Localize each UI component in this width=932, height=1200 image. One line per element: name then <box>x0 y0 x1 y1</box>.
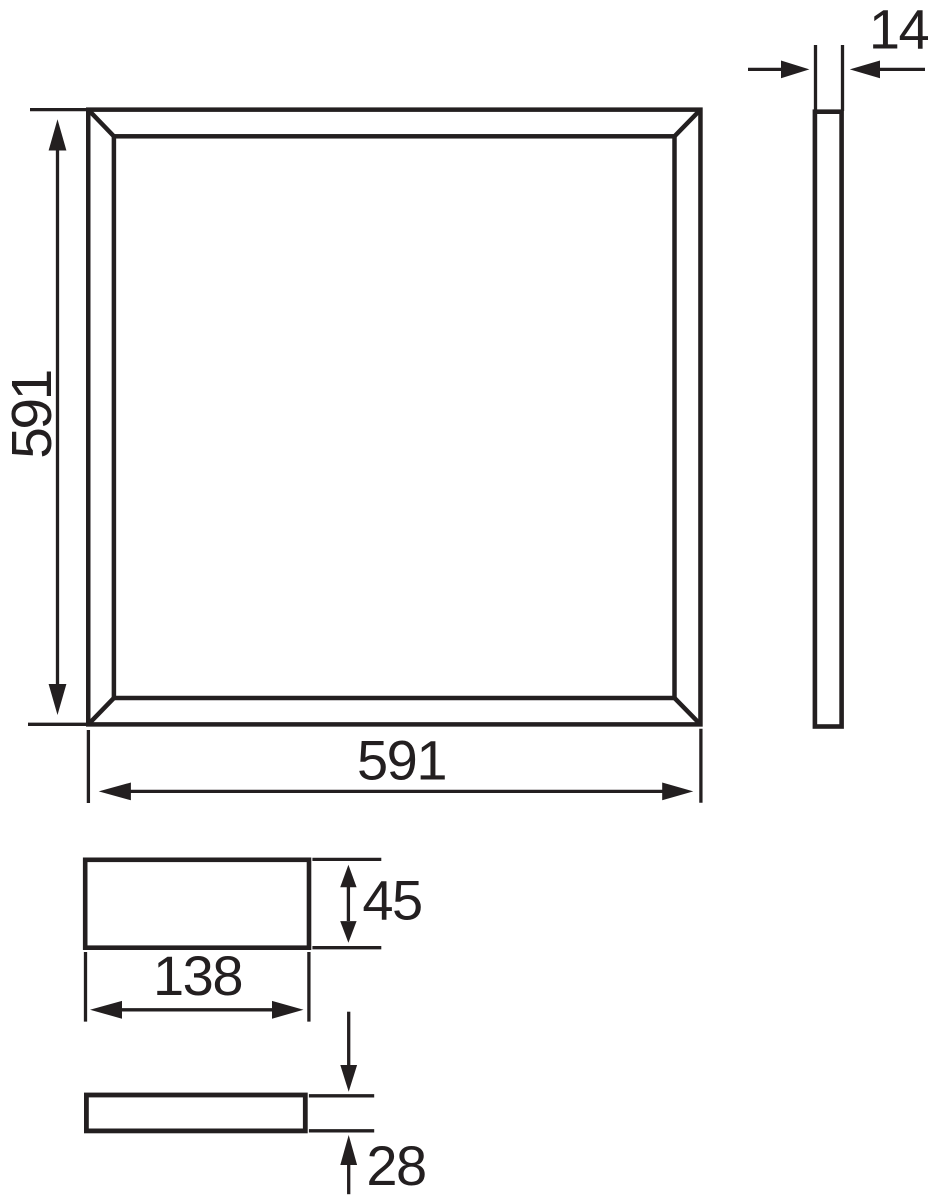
svg-text:45: 45 <box>362 869 421 932</box>
svg-text:591: 591 <box>0 371 64 459</box>
svg-text:138: 138 <box>153 944 242 1007</box>
svg-text:14: 14 <box>869 0 929 61</box>
svg-text:591: 591 <box>357 728 446 791</box>
svg-text:28: 28 <box>366 1134 425 1197</box>
